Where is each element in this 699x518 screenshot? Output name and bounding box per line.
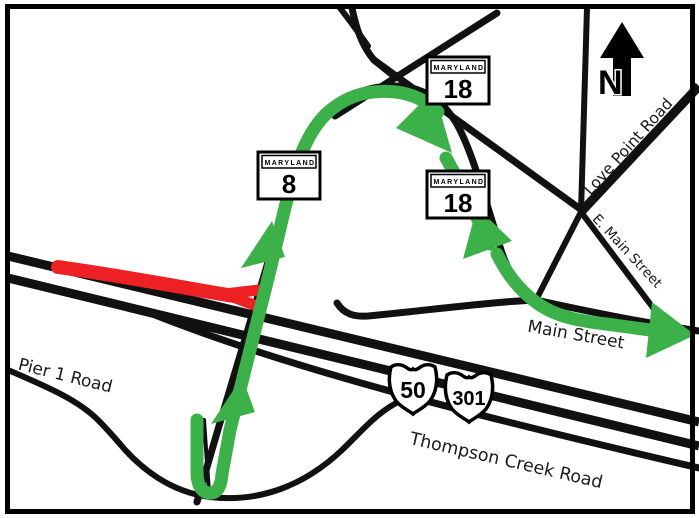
- shield-md-18-upper: MARYLAND 18: [427, 57, 489, 104]
- label-love-point-road: Love Point Road: [580, 95, 676, 199]
- road-us50-301-eastbound: [8, 278, 699, 446]
- shield-us-50-number: 50: [400, 377, 426, 403]
- detour-map: MARYLAND 8 MARYLAND 18 MARYLAND 18 50 30…: [0, 0, 699, 518]
- north-label: N: [598, 64, 623, 102]
- shield-md-8-state: MARYLAND: [265, 160, 316, 167]
- road-thompson-creek: [120, 402, 398, 498]
- shield-md-18-lower: MARYLAND 18: [427, 171, 489, 218]
- shield-md-8: MARYLAND 8: [258, 152, 320, 199]
- detour-arrowhead-5: [646, 302, 695, 358]
- map-canvas: MARYLAND 8 MARYLAND 18 MARYLAND 18 50 30…: [0, 0, 699, 518]
- shield-md-18-lower-number: 18: [444, 188, 473, 218]
- shield-md-18-lower-state: MARYLAND: [434, 179, 485, 186]
- label-pier-1-road: Pier 1 Road: [16, 355, 114, 398]
- shield-us-50: 50: [389, 365, 436, 414]
- road-junction-link: [536, 212, 581, 300]
- road-labels: Love Point Road E. Main Street Main Stre…: [16, 95, 676, 493]
- shield-md-8-number: 8: [282, 169, 296, 199]
- road-network: [8, 8, 699, 502]
- road-love-point: [581, 86, 699, 212]
- shield-us-301-number: 301: [452, 388, 485, 410]
- north-indicator: N: [598, 22, 644, 102]
- north-arrow-icon: [600, 22, 644, 58]
- shield-md-18-upper-state: MARYLAND: [434, 65, 485, 72]
- label-e-main-street: E. Main Street: [589, 211, 665, 291]
- shield-md-18-upper-number: 18: [444, 74, 473, 104]
